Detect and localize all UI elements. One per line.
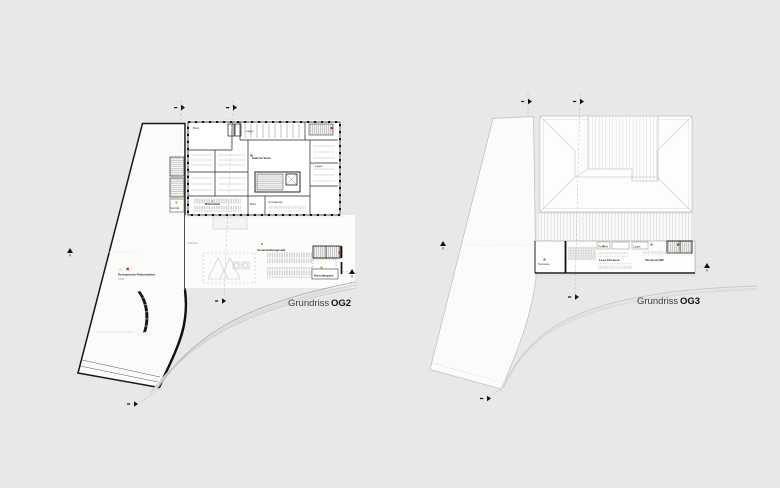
og2-label-buero-unten: Büro [250, 202, 257, 206]
plan-og3: Terrasse Technik Lager Lese Terrasse Ter… [430, 94, 757, 401]
og3-elevation-marker-left [440, 241, 446, 250]
og2-hall-seats-2 [266, 267, 312, 278]
og2-label-galerie: Galerie Verw. [252, 156, 271, 160]
og2-label-sozialraum: Sozialraum [268, 200, 284, 204]
plan-og2: Büro Lager Galerie Verw. Lager Bibliothe… [67, 100, 356, 407]
og2-section-marker-top-1 [174, 105, 185, 111]
og3-red-dot [677, 244, 679, 246]
og3-deck-band [537, 213, 692, 241]
og2-hall-seats-1 [266, 252, 312, 263]
og3-label-terrasse-nw: Terrasse NW [645, 258, 664, 262]
plan-sheet: Büro Lager Galerie Verw. Lager Bibliothe… [0, 0, 780, 488]
og3-section-marker-top-1 [521, 99, 532, 105]
og2-red-dot-1 [331, 127, 333, 129]
og2-section-marker-top-2 [226, 105, 237, 111]
og2-chairs [268, 205, 306, 212]
og2-canopy [213, 217, 247, 229]
og3-green-dot [651, 244, 653, 246]
og2-stacks-row-2 [193, 206, 241, 212]
og2-caption-bold: OG2 [331, 298, 351, 309]
og3-label-technik: Technik [598, 245, 609, 249]
og3-caption: Grundriss [637, 296, 678, 307]
og2-label-lager-right: Lager [315, 164, 323, 168]
og3-label-terrasse: Terrasse [538, 262, 550, 266]
og2-red-dot-3 [127, 268, 129, 270]
og3-caption-bold: OG3 [680, 296, 700, 307]
og3-roof-deck-hatch [589, 117, 657, 169]
og2-label-lager-top: Lager [246, 129, 254, 133]
drawing-canvas: Büro Lager Galerie Verw. Lager Bibliothe… [0, 0, 780, 488]
og2-side-rooms [170, 157, 184, 212]
og3-site-outline [430, 117, 536, 390]
og2-label-permanente-area: 2166 [118, 277, 125, 281]
og2-label-bibliothek: Bibliothek [205, 202, 220, 206]
og2-stair-core [255, 172, 300, 192]
og3-label-lese: Lese Terrasse [599, 258, 620, 262]
og2-label-veranstaltung: Veranstaltungssaal [257, 248, 285, 252]
og2-stair-topright [309, 124, 333, 135]
og2-label-sanitaet: Sanität [170, 206, 180, 210]
og3-section-marker-top-2 [573, 99, 584, 105]
og2-section-marker-bottom-1 [215, 298, 226, 304]
og2-elevation-marker-left [67, 248, 73, 257]
og3-room-strip: Terrasse Technik Lager Lese Terrasse Ter… [535, 241, 695, 273]
og3-label-lager: Lager [633, 245, 641, 249]
og3-section-marker-bottom-1 [568, 294, 579, 300]
og3-elevation-marker-right [704, 263, 710, 272]
og2-caption: Grundriss [288, 298, 329, 309]
og3-roof [540, 116, 692, 212]
og2-label-luftraum: Luftraum [187, 241, 199, 245]
og3-blue-dot [544, 259, 546, 261]
og2-label-buero-tl: Büro [193, 126, 200, 130]
og2-yellow-dot-1 [261, 243, 263, 245]
og2-label-kuenstler: Künstlergard. [314, 274, 334, 278]
og2-section-marker-bottom-2 [127, 401, 138, 407]
og3-road-curves [500, 286, 757, 391]
og2-label-permanente-no: 01 [119, 268, 123, 272]
